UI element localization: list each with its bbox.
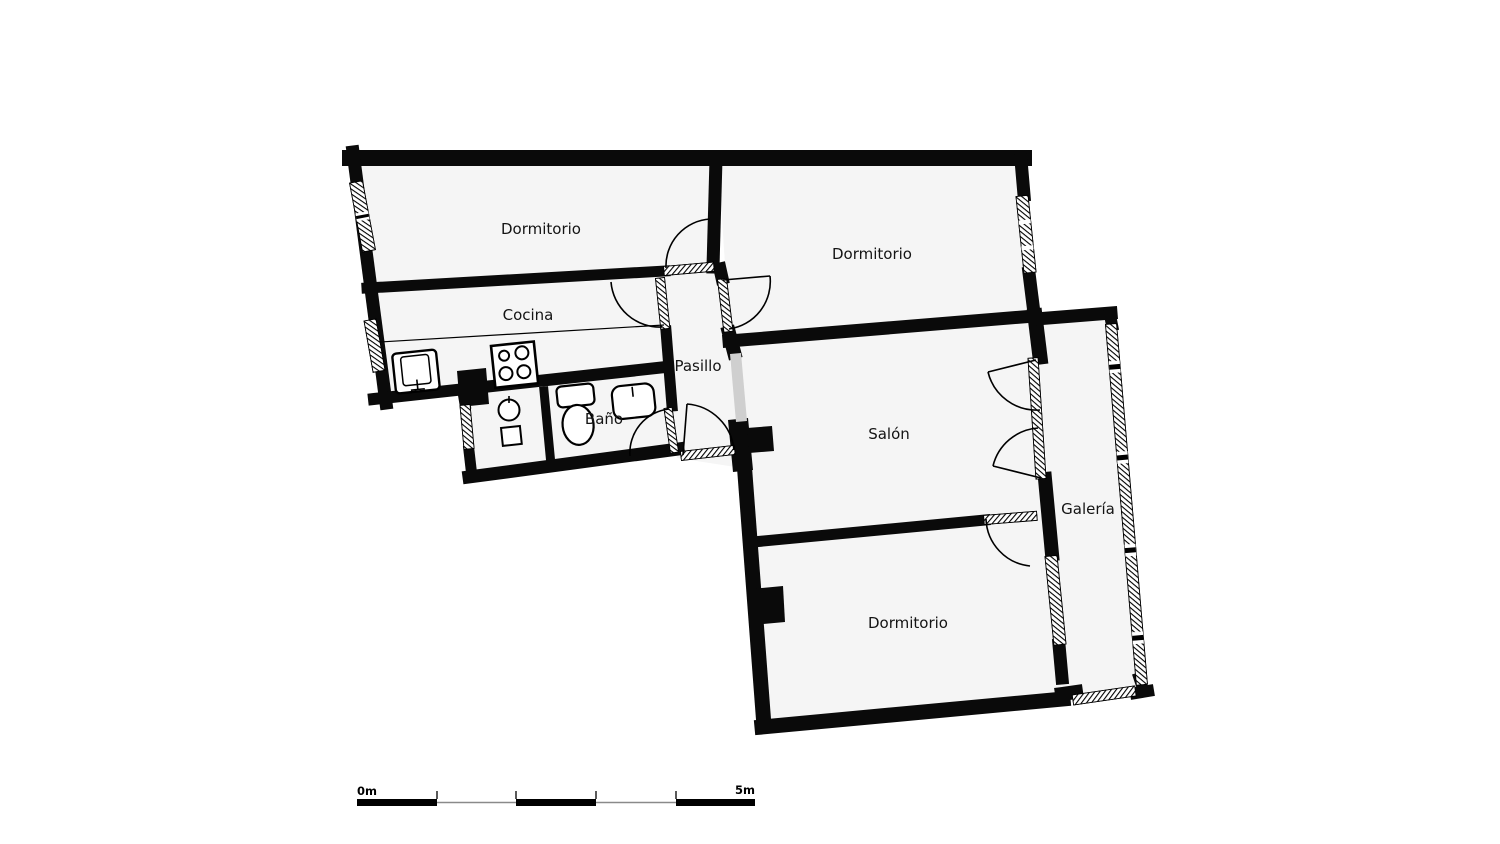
stove-icon	[491, 342, 538, 388]
wall-galeria-top	[1036, 313, 1111, 319]
wall-galeria-corner-br-h	[1136, 691, 1148, 693]
wall-dormitorio2-right-lower	[1029, 273, 1034, 313]
scale-bar: 0m 5m	[357, 783, 755, 806]
label-dormitorio-top-left: Dormitorio	[501, 220, 581, 238]
scale-segment-1	[357, 799, 437, 806]
label-salon: Salón	[868, 425, 910, 443]
floor-plan-page: Dormitorio Dormitorio Cocina Pasillo Bañ…	[0, 0, 1500, 844]
kitchen-sink-icon	[392, 349, 440, 393]
pillar-pasillo-arm	[747, 426, 774, 453]
label-bano: Baño	[585, 410, 623, 428]
label-cocina: Cocina	[503, 306, 554, 324]
pillar-dormitorio3	[751, 586, 785, 625]
label-dormitorio-top-right: Dormitorio	[832, 245, 912, 263]
wall-dormitorio1-dormitorio2	[713, 159, 716, 267]
wall-dormitorio2-right-upper	[1021, 160, 1024, 195]
scale-segment-3	[516, 799, 596, 806]
scale-end-label: 5m	[735, 783, 755, 797]
floor-plan: Dormitorio Dormitorio Cocina Pasillo Bañ…	[0, 0, 1500, 844]
scale-segment-5	[676, 799, 755, 806]
wall-lavadero-left-upper	[463, 392, 465, 404]
label-pasillo: Pasillo	[674, 357, 721, 375]
label-dormitorio-bottom: Dormitorio	[868, 614, 948, 632]
wall-salon-galeria-lower	[1045, 479, 1052, 554]
wall-pasillo-right-stub	[720, 269, 722, 278]
scale-start-label: 0m	[357, 784, 377, 798]
wall-d3-galeria-block	[1059, 645, 1062, 678]
label-galeria: Galería	[1061, 500, 1115, 518]
